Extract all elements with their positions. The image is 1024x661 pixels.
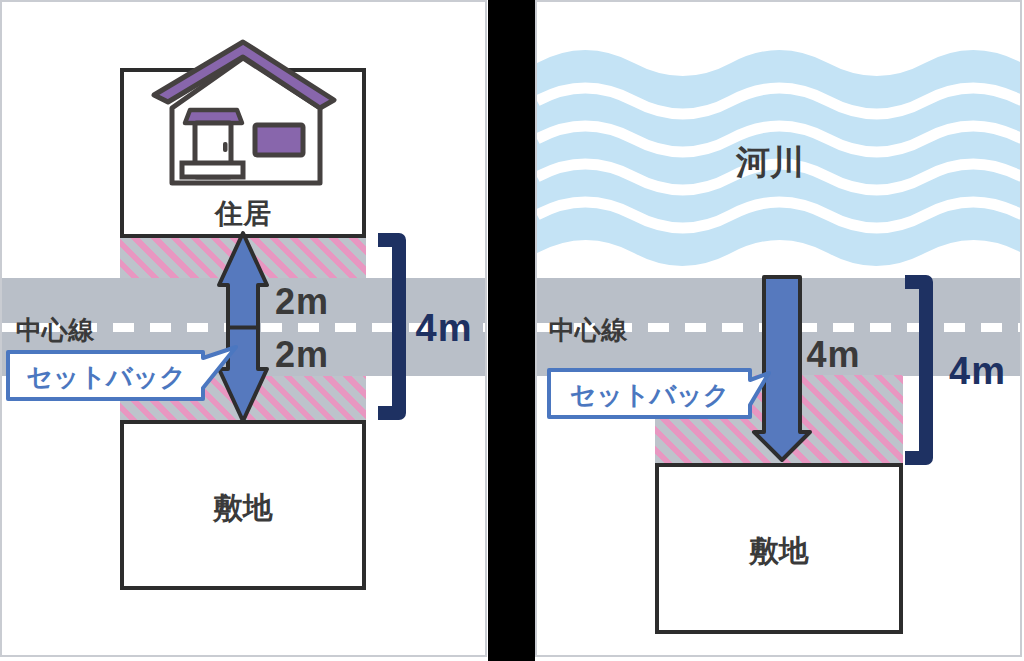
door-step (182, 163, 243, 177)
window (255, 125, 303, 155)
setback-diagram: 住居 敷地 中心線 2m 2m 4m セットバック 河川 中心線 4m 4m (0, 0, 1024, 661)
site-label: 敷地 (120, 488, 366, 529)
house-icon (150, 36, 340, 188)
setback-distance-value: 4m (791, 334, 876, 376)
site-label: 敷地 (655, 531, 903, 572)
setback-bubble-label: セットバック (549, 378, 750, 413)
setback-hatch-upper (120, 236, 366, 278)
total-width-value: 4m (404, 307, 484, 350)
door-handle (223, 142, 228, 152)
centerline-label: 中心線 (549, 313, 627, 348)
building-label: 住居 (120, 195, 366, 233)
setback-bubble-label: セットバック (8, 360, 204, 395)
river-setback-panel: 河川 中心線 4m 4m セットバック 敷地 (535, 0, 1022, 657)
lower-setback-value: 2m (260, 334, 344, 376)
panel-divider (488, 0, 535, 661)
total-width-value: 4m (935, 350, 1020, 393)
upper-setback-value: 2m (260, 281, 344, 323)
centerline-label: 中心線 (16, 313, 94, 348)
road-setback-panel: 住居 敷地 中心線 2m 2m 4m セットバック (0, 0, 487, 657)
river-label: 河川 (720, 140, 820, 186)
